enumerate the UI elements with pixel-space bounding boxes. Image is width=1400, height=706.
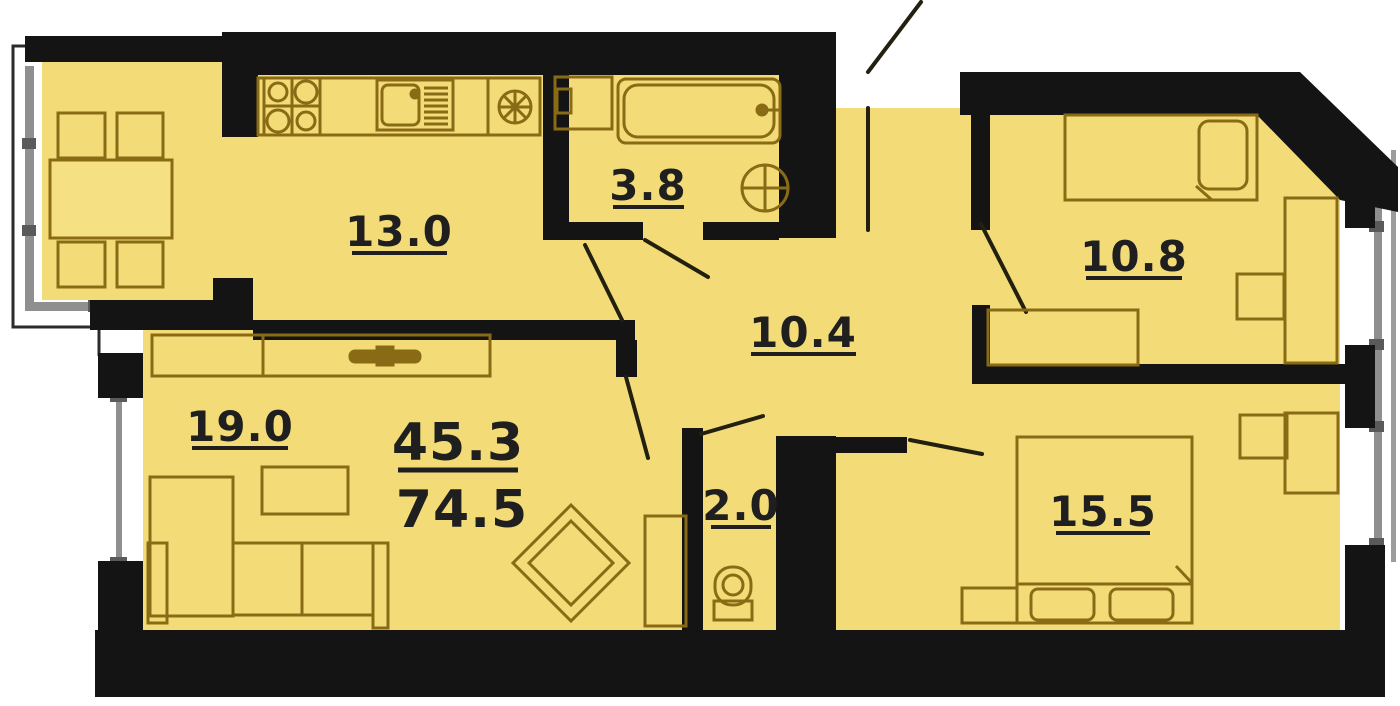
wall-dining-bottom-step (213, 278, 253, 330)
wall-between-bedrooms (988, 364, 1345, 384)
floor-plan: 13.0 3.8 10.4 10.8 19.0 2.0 15.5 45.3 74… (0, 0, 1400, 706)
glazing-right-inner (1374, 158, 1382, 560)
entry-door-swing-line (868, 2, 921, 72)
bedroom1-area-label: 10.8 (1080, 232, 1188, 281)
wall-right-middle (1345, 345, 1375, 428)
wall-bedroom2-top (836, 437, 907, 453)
wall-bottom (95, 630, 1385, 697)
wc-area-label: 2.0 (702, 481, 779, 530)
washbasin-icon (742, 165, 788, 211)
wall-top-right (960, 72, 1269, 115)
wall-top-balcony (25, 36, 222, 62)
wall-shaft-entry (779, 32, 836, 238)
wall-stub-kitchen (222, 32, 258, 137)
tv-icon (350, 347, 420, 365)
hallway-area-label: 10.4 (749, 308, 857, 357)
overall-total-label: 74.5 (396, 480, 528, 540)
living-total-label: 45.3 (392, 413, 524, 473)
floor-plan-page: 13.0 3.8 10.4 10.8 19.0 2.0 15.5 45.3 74… (0, 0, 1400, 706)
wall-living-top-cap (616, 340, 637, 377)
wall-bathroom-bottom-right (703, 222, 779, 240)
kitchen-area-label: 13.0 (345, 207, 453, 256)
wall-top-main (222, 32, 836, 75)
wall-living-top (253, 320, 635, 340)
bathroom-area-label: 3.8 (609, 161, 686, 210)
glazing-marker (22, 138, 36, 149)
wall-left-lower (98, 561, 143, 630)
floor-entry (836, 108, 972, 240)
window-left-glass (116, 398, 122, 561)
bedroom2-area-label: 15.5 (1049, 487, 1157, 536)
wall-left-upper (98, 353, 143, 398)
glazing-left-bottom (25, 302, 97, 311)
glazing-left (25, 66, 34, 310)
wall-bedroom1-left-upper (971, 105, 990, 230)
glazing-marker (22, 225, 36, 236)
living-area-label: 19.0 (186, 402, 294, 451)
wall-shaft-wc (776, 436, 836, 630)
wall-bathroom-bottom-left (543, 222, 643, 240)
wall-right-upper (1345, 198, 1375, 228)
dining-table (50, 160, 172, 238)
glazing-right-outer (1391, 150, 1396, 562)
window-left-living (110, 393, 127, 566)
